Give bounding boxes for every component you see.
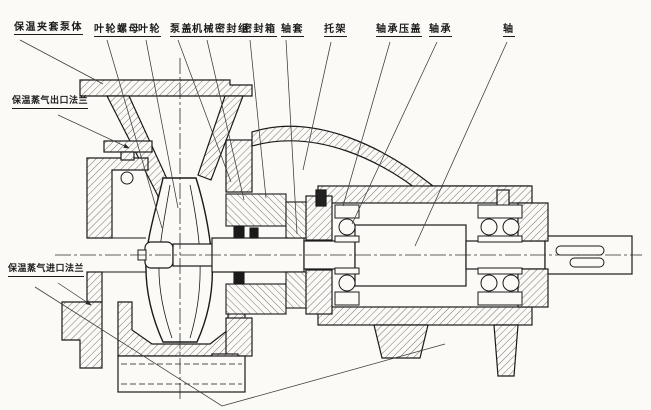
jacket-lower-left (62, 302, 102, 368)
pump-foot (118, 356, 245, 392)
seal-box-lower (226, 284, 286, 314)
jacket-upper-left (87, 158, 148, 238)
pump-cover-upper (226, 140, 252, 192)
label-bracket: 托架 (324, 24, 347, 37)
label-pump-cover: 泵盖 (170, 24, 193, 37)
drawing-canvas (0, 0, 651, 410)
suction-flange-lower (87, 272, 102, 302)
label-steam-outlet-flange: 保温蒸气出口法兰 (12, 97, 88, 109)
housing-foot-right (494, 325, 518, 376)
discharge-flange (80, 80, 252, 96)
shaft-core (355, 225, 466, 286)
label-steam-inlet-flange: 保温蒸气进口法兰 (8, 265, 84, 277)
housing-plug-right (497, 190, 509, 206)
leader-steam-outlet (58, 115, 129, 148)
leader-bracket (303, 42, 331, 170)
bearing-cap-left-lower (306, 270, 332, 314)
label-mechanical-seal-assembly: 机械密封组 (192, 24, 250, 37)
housing-plug-left (316, 190, 326, 206)
leader-impeller-nut (107, 40, 162, 228)
label-seal-box: 密封箱 (242, 24, 277, 37)
mech-seal-element (234, 226, 244, 238)
label-shaft: 轴 (503, 24, 515, 37)
pump-sectional-drawing: 保温夹套泵体 叶轮螺母 叶轮 泵盖 机械密封组 密封箱 轴套 托架 轴承压盖 轴… (0, 0, 651, 410)
label-shaft-sleeve: 轴套 (281, 24, 304, 37)
steam-outlet-flange (104, 141, 152, 152)
label-bearing: 轴承 (429, 24, 452, 37)
label-bearing-gland: 轴承压盖 (376, 24, 422, 37)
leader-bearing-gland (343, 42, 390, 206)
pump-cover-lower (226, 318, 252, 356)
seal-box-upper (226, 194, 286, 226)
label-jacketed-pump-body: 保温夹套泵体 (14, 22, 83, 35)
housing-foot-left (374, 325, 428, 358)
label-impeller: 叶轮 (138, 24, 161, 37)
label-impeller-nut: 叶轮螺母 (94, 24, 140, 37)
leader-jacketed-pump-body (20, 40, 103, 84)
jacket-port-hole (121, 172, 133, 184)
